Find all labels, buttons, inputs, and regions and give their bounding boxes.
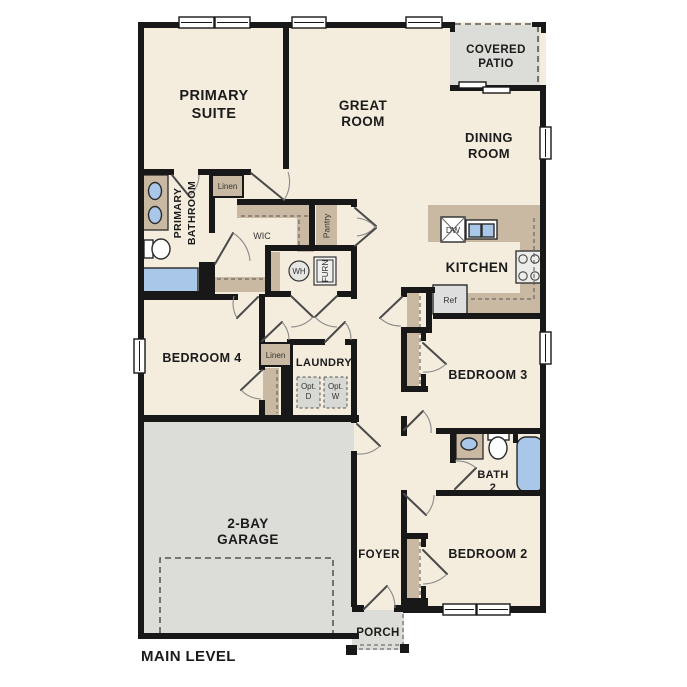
kitchen-counter-bottom [467,293,541,313]
primary-suite-label-1: PRIMARY [179,88,248,104]
laundry-label: LAUNDRY [296,357,352,369]
water-heater-label: WH [292,267,306,276]
primary-bathroom-label-2: BATHROOM [186,181,198,245]
linen-upper-label: Linen [218,182,238,191]
porch-label: PORCH [356,627,400,639]
furnace-label: FURN [321,260,330,282]
great-room-label-1: GREAT [339,98,388,113]
great-room-label-2: ROOM [341,114,385,129]
bedroom3-closet-shelf [407,333,419,386]
wic-label: WIC [253,231,271,241]
floor-plan-drawing: PRIMARY SUITE GREAT ROOM COVERED PATIO D… [0,0,687,687]
kitchen-sink-basin-2 [482,224,494,237]
dining-room-label-2: ROOM [468,146,510,161]
bath2-label-2: 2 [490,482,497,494]
bath2-sink [461,438,477,450]
bath2-label-1: BATH [477,469,508,481]
bedroom2-label: BEDROOM 2 [448,547,527,561]
covered-patio-area [450,25,540,87]
opt-washer-label-1: Opt. [328,382,343,391]
kitchen-label: KITCHEN [446,260,509,275]
bedroom2-closet-shelf [407,539,419,598]
linen-hall-label: Linen [266,351,286,360]
primary-bath-sink-2 [149,207,162,224]
garage-label-2: GARAGE [217,532,279,547]
pantry-label: Pantry [322,213,332,238]
patio-slider-pane [483,87,510,93]
bath2-tub [517,437,543,492]
bath2-toilet-bowl [489,437,507,459]
primary-bath-toilet-bowl [152,239,170,259]
primary-bathroom-label-1: PRIMARY [172,188,184,239]
covered-patio-label-1: COVERED [466,44,526,56]
plan-title: MAIN LEVEL [141,648,236,665]
kitchen-sink-basin-1 [469,224,481,237]
dishwasher-label: DW [446,225,460,235]
coat-closet-shelf [407,293,419,327]
opt-dryer-label-1: Opt. [301,382,316,391]
bedroom3-label: BEDROOM 3 [448,368,527,382]
patio-slider-pane [459,82,486,88]
primary-bath-tub [142,268,198,293]
covered-patio-label-2: PATIO [478,58,513,70]
foyer-label: FOYER [358,549,400,561]
floor-plan-page: PRIMARY SUITE GREAT ROOM COVERED PATIO D… [0,0,687,687]
primary-bath-sink-1 [149,183,162,200]
primary-suite-label-2: SUITE [192,106,237,122]
bedroom4-label: BEDROOM 4 [162,351,241,365]
opt-washer-label-2: W [332,392,340,401]
opt-dryer-label-2: D [306,392,312,401]
dining-room-label-1: DINING [465,130,513,145]
refrigerator-label: Ref [443,295,457,305]
garage-label-1: 2-BAY [227,516,268,531]
